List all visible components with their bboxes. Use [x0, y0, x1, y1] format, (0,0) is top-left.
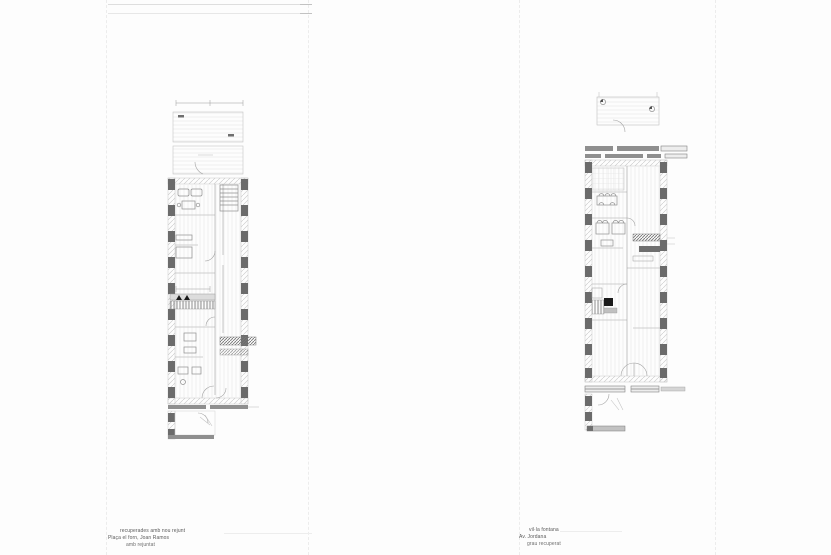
title-block-left: recuperades amb nou rejunt Plaça el forn… [108, 528, 185, 549]
floor-plan-right [573, 88, 695, 440]
terrace-front [173, 112, 243, 174]
fold-line-4 [715, 0, 716, 555]
balcony-slabs [585, 146, 687, 158]
deck-grid [592, 168, 624, 190]
rear-annex-right-plan [585, 386, 685, 431]
header-rule-top [108, 4, 312, 5]
roof-deck [597, 92, 659, 132]
floor-texture [175, 184, 241, 398]
caption-line: recuperades amb nou rejunt [120, 528, 185, 535]
header-rule-bottom [108, 13, 312, 14]
caption-line: grau recuperat [527, 541, 561, 548]
floor-plan-left [158, 95, 268, 447]
fold-line-3 [519, 0, 520, 555]
caption-rule-left [224, 533, 312, 534]
title-block-right: vil·la fontana Av. Jordana grau recupera… [519, 527, 561, 548]
caption-line: Av. Jordana [519, 534, 561, 541]
dimension-line-top [176, 100, 243, 106]
fold-line-1 [106, 0, 107, 555]
floor-texture [592, 166, 660, 376]
drawing-sheet: { "palette": { "ink": "#4a4a4a", "line":… [0, 0, 831, 555]
caption-line: amb rejuntat [126, 542, 185, 549]
building-shell-left [168, 178, 248, 404]
fold-line-2 [308, 0, 309, 555]
building-shell-right [585, 160, 667, 382]
caption-line: Plaça el forn, Joan Ramos [108, 535, 185, 542]
caption-rule-right [560, 531, 622, 532]
caption-line: vil·la fontana [529, 527, 561, 534]
